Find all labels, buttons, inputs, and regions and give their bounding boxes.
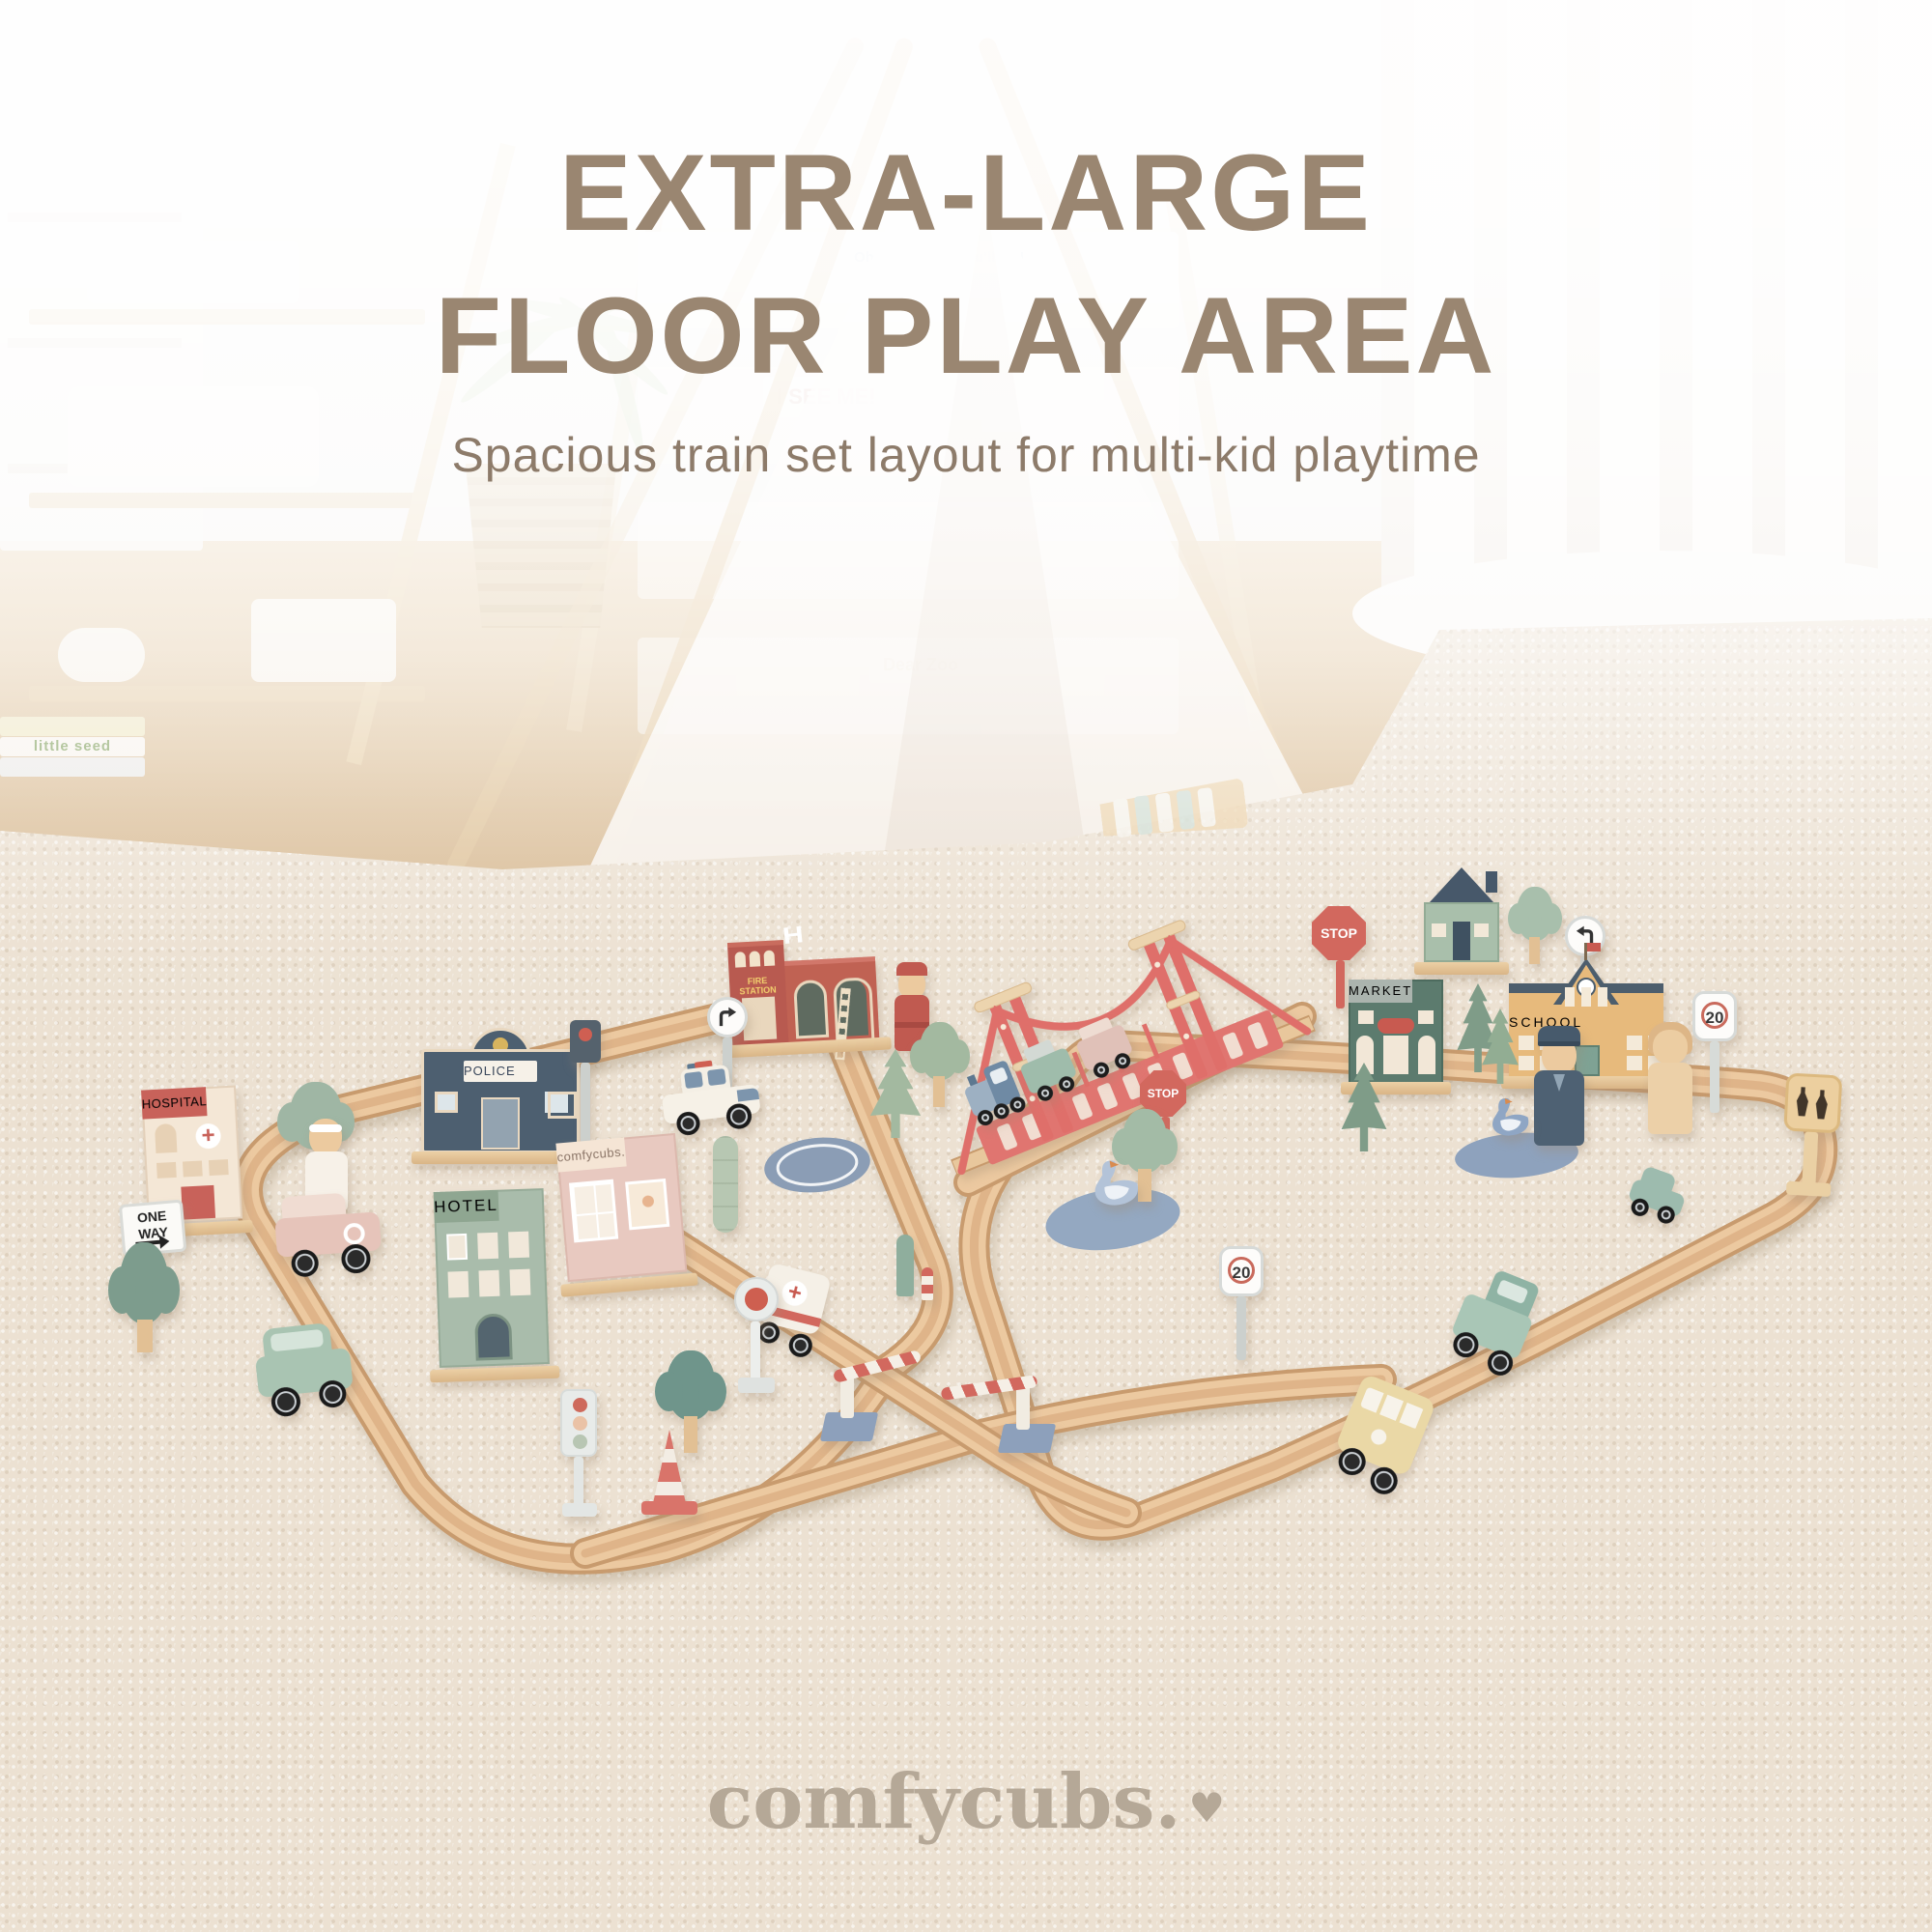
crossing-barrier	[945, 1360, 1061, 1453]
girl-figure	[1640, 1022, 1700, 1151]
comfycubs-shop-building: comfycubs.	[555, 1133, 688, 1295]
traffic-light	[560, 1389, 599, 1519]
brand-logo-text: comfycubs.	[707, 1758, 1181, 1846]
hotel-building: HOTEL	[434, 1188, 551, 1381]
school-clock	[1577, 978, 1596, 997]
school-flag	[1584, 943, 1587, 960]
pink-toy-car	[273, 1190, 384, 1288]
green-toy-car	[252, 1321, 356, 1427]
toy-house	[1418, 867, 1505, 976]
headline-block: EXTRA-LARGE FLOOR PLAY AREA Spacious tra…	[0, 122, 1932, 483]
green-toy-truck	[1434, 1260, 1551, 1391]
signal-posts	[896, 1235, 954, 1331]
police-car	[659, 1061, 763, 1144]
shop-sign: comfycubs.	[555, 1138, 626, 1173]
tree	[1513, 887, 1559, 968]
fire-station-building: FIRE STATION	[727, 935, 880, 1061]
police-sign: POLICE	[464, 1061, 537, 1082]
speed-limit-sign: 20	[1219, 1246, 1267, 1372]
pedestrian-icon	[1796, 1087, 1809, 1117]
product-marketing-image: little seed Oh, the Places You'll Go! I …	[0, 0, 1932, 1932]
traffic-cone	[641, 1430, 697, 1519]
hotel-sign: HOTEL	[434, 1190, 499, 1223]
fire-station-sign: FIRE STATION	[731, 975, 784, 997]
headline-line-1: EXTRA-LARGE	[0, 122, 1932, 265]
headline-line-2: FLOOR PLAY AREA	[0, 265, 1932, 408]
market-awning	[1378, 1018, 1414, 1034]
brand-logo: comfycubs.♥	[0, 1758, 1932, 1846]
right-turn-arrow-icon	[715, 1005, 740, 1030]
heart-icon: ♥	[1189, 1784, 1226, 1832]
railway-signal-disc	[734, 1277, 781, 1401]
hospital-sign: HOSPITAL	[141, 1087, 208, 1119]
traffic-light	[570, 1020, 603, 1155]
small-green-car	[1620, 1163, 1691, 1237]
subtitle: Spacious train set layout for multi-kid …	[0, 427, 1932, 483]
tree	[116, 1242, 176, 1356]
yellow-toy-bus	[1323, 1373, 1446, 1509]
pedestrian-crossing-sign	[1780, 1072, 1847, 1201]
crossing-barrier	[823, 1349, 939, 1441]
market-sign: MARKET	[1349, 980, 1412, 1003]
column-tree	[713, 1136, 738, 1233]
pedestrian-icon	[1815, 1090, 1829, 1120]
